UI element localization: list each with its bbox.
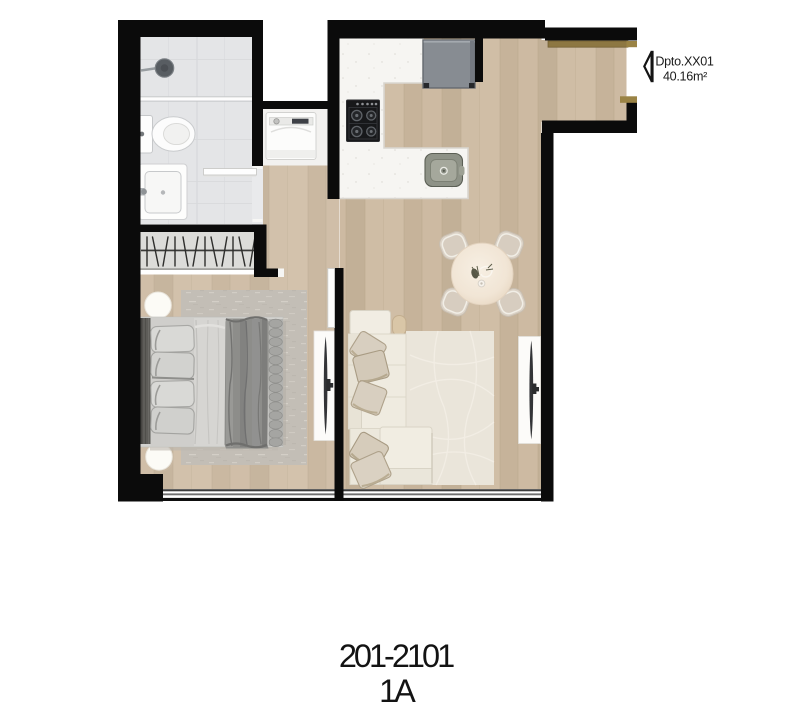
svg-text:201-2101: 201-2101 (339, 638, 454, 674)
svg-text:1A: 1A (379, 673, 416, 709)
svg-text:40.16m²: 40.16m² (663, 69, 707, 83)
svg-text:Dpto.XX01: Dpto.XX01 (655, 55, 714, 69)
